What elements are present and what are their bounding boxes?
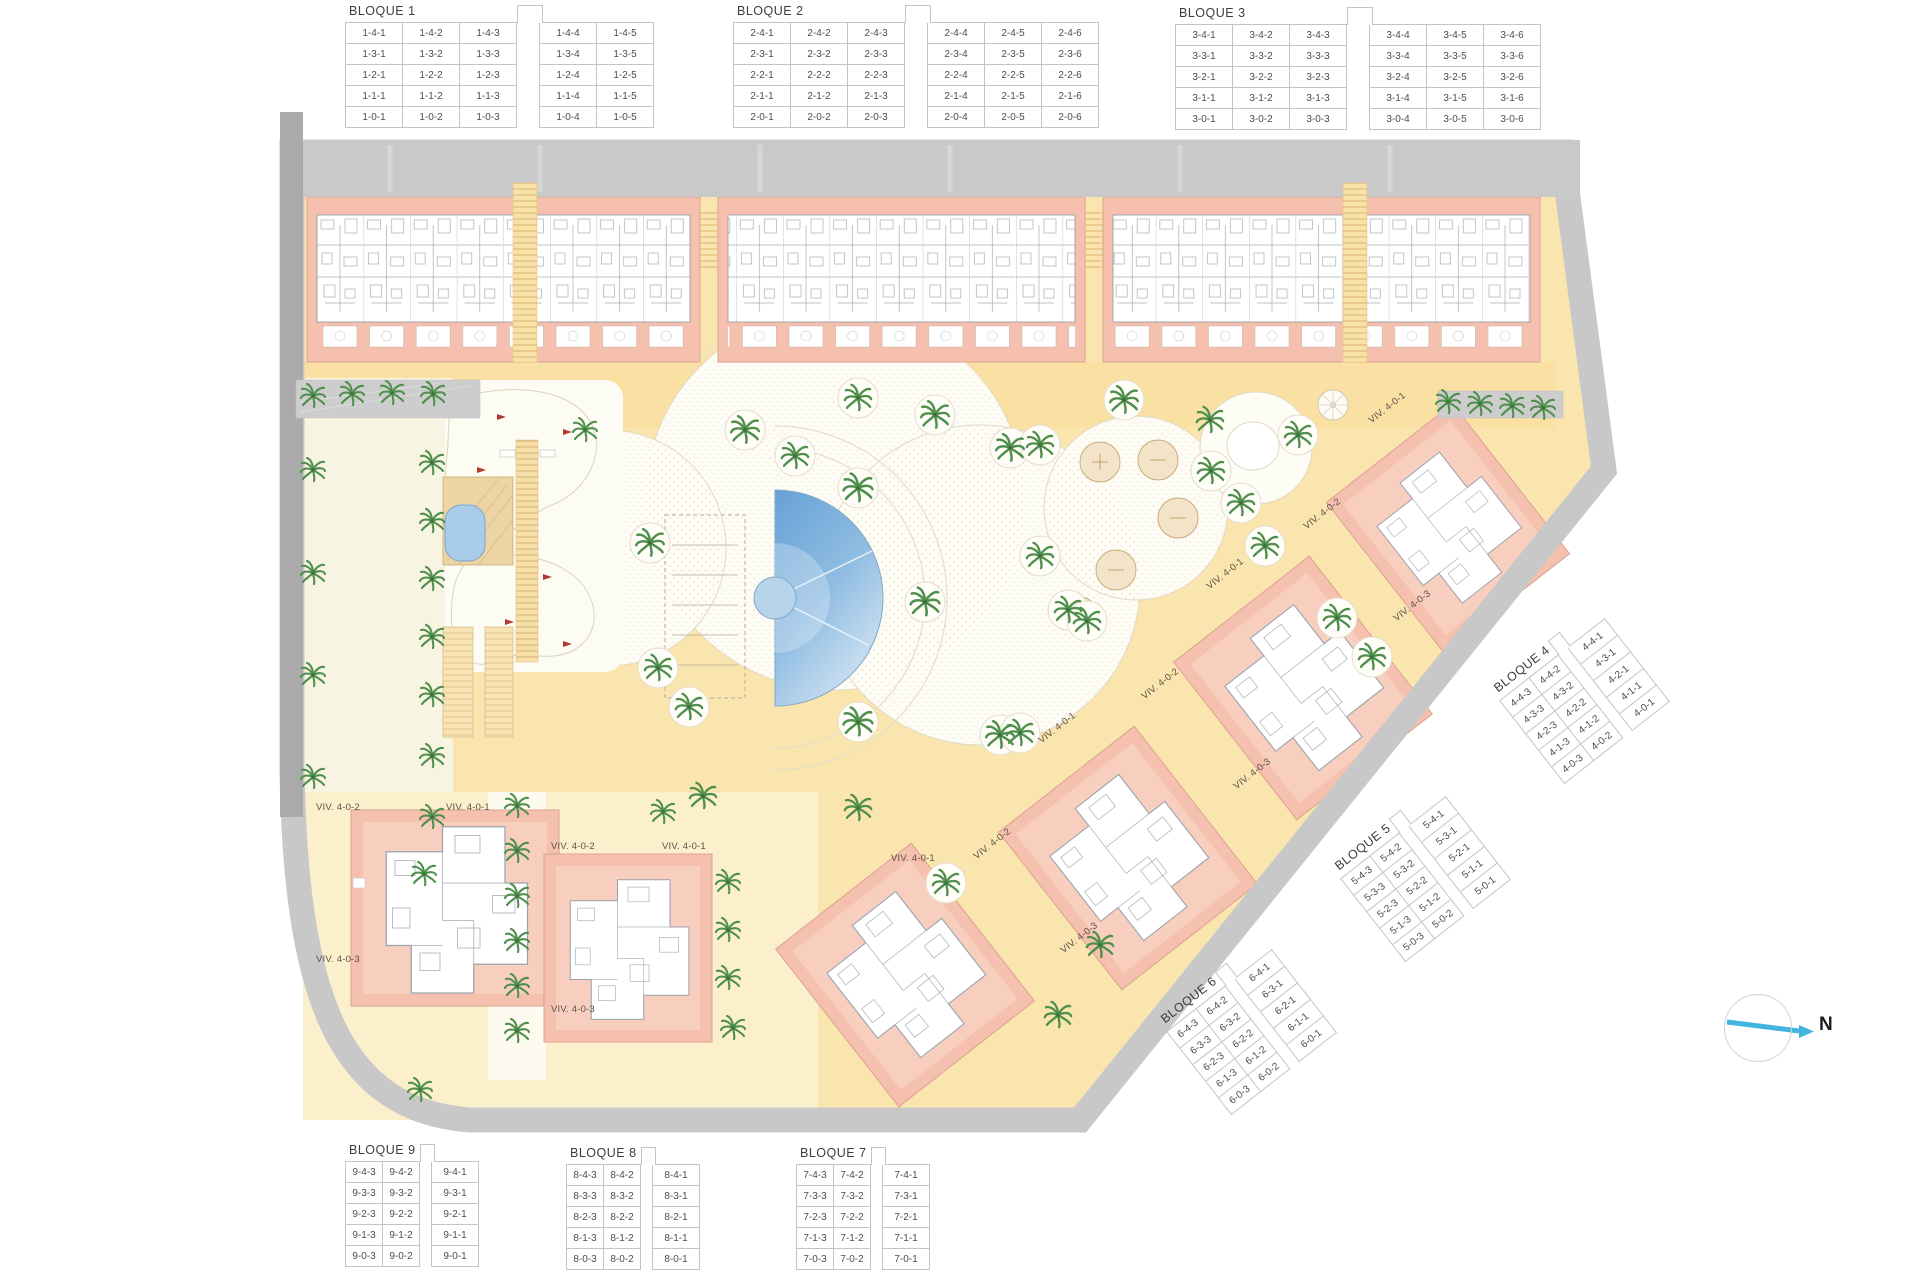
unit-cell: 3-3-1 bbox=[1176, 46, 1233, 67]
unit-cell: 8-3-1 bbox=[653, 1186, 700, 1207]
unit-cell: 2-0-2 bbox=[791, 107, 848, 128]
unit-cell: 8-2-2 bbox=[604, 1207, 641, 1228]
unit-cell: 3-0-2 bbox=[1233, 109, 1290, 130]
table-gap-cell bbox=[420, 1225, 432, 1246]
unit-cell: 8-4-3 bbox=[567, 1165, 604, 1186]
table-gap-cell bbox=[641, 1228, 653, 1249]
unit-cell: 7-1-3 bbox=[797, 1228, 834, 1249]
unit-cell: 2-4-5 bbox=[985, 23, 1042, 44]
bloque-8-title: BLOQUE 8 bbox=[570, 1146, 637, 1160]
bloque-3-table: BLOQUE 3 3-4-13-4-23-4-33-4-43-4-53-4-63… bbox=[1175, 6, 1541, 130]
unit-cell: 1-0-5 bbox=[597, 107, 654, 128]
unit-cell: 3-0-6 bbox=[1484, 109, 1541, 130]
unit-cell: 7-3-2 bbox=[834, 1186, 871, 1207]
table-gap-box bbox=[1347, 7, 1373, 25]
bloque-1-title: BLOQUE 1 bbox=[349, 4, 416, 18]
unit-cell: 7-2-1 bbox=[883, 1207, 930, 1228]
unit-cell: 2-2-5 bbox=[985, 65, 1042, 86]
unit-cell: 9-1-3 bbox=[346, 1225, 383, 1246]
unit-cell: 9-1-2 bbox=[383, 1225, 420, 1246]
unit-cell: 2-0-4 bbox=[928, 107, 985, 128]
unit-cell: 2-0-5 bbox=[985, 107, 1042, 128]
table-gap-cell bbox=[641, 1207, 653, 1228]
unit-cell: 1-2-5 bbox=[597, 65, 654, 86]
viv-unit-label: VIV. 4-0-1 bbox=[446, 802, 490, 813]
viv-unit-label: VIV. 4-0-3 bbox=[1392, 588, 1433, 624]
unit-grid: 1-4-11-4-21-4-31-4-41-4-51-3-11-3-21-3-3… bbox=[345, 22, 654, 128]
unit-cell: 2-0-1 bbox=[734, 107, 791, 128]
table-gap-cell bbox=[1347, 25, 1370, 46]
table-gap-cell bbox=[1347, 88, 1370, 109]
unit-cell: 1-4-2 bbox=[403, 23, 460, 44]
unit-cell: 3-3-5 bbox=[1427, 46, 1484, 67]
table-gap-cell bbox=[1347, 46, 1370, 67]
unit-cell: 1-4-3 bbox=[460, 23, 517, 44]
unit-cell: 3-4-5 bbox=[1427, 25, 1484, 46]
unit-cell: 2-3-2 bbox=[791, 44, 848, 65]
unit-cell: 3-1-3 bbox=[1290, 88, 1347, 109]
unit-cell: 3-4-6 bbox=[1484, 25, 1541, 46]
unit-cell: 2-1-4 bbox=[928, 86, 985, 107]
unit-cell: 1-1-5 bbox=[597, 86, 654, 107]
unit-cell: 9-0-1 bbox=[432, 1246, 479, 1267]
viv-unit-label: VIV. 4-0-2 bbox=[316, 802, 360, 813]
unit-cell: 3-1-2 bbox=[1233, 88, 1290, 109]
unit-cell: 2-0-6 bbox=[1042, 107, 1099, 128]
unit-cell: 1-0-2 bbox=[403, 107, 460, 128]
unit-cell: 8-0-1 bbox=[653, 1249, 700, 1270]
unit-cell: 2-3-4 bbox=[928, 44, 985, 65]
table-gap-cell bbox=[905, 23, 928, 44]
unit-cell: 3-4-2 bbox=[1233, 25, 1290, 46]
unit-cell: 2-2-4 bbox=[928, 65, 985, 86]
table-gap-cell bbox=[641, 1249, 653, 1270]
unit-cell: 3-2-6 bbox=[1484, 67, 1541, 88]
unit-cell: 1-3-3 bbox=[460, 44, 517, 65]
unit-cell: 1-2-1 bbox=[346, 65, 403, 86]
table-gap-cell bbox=[871, 1249, 883, 1270]
unit-cell: 9-3-1 bbox=[432, 1183, 479, 1204]
unit-cell: 1-4-4 bbox=[540, 23, 597, 44]
table-gap-cell bbox=[871, 1207, 883, 1228]
viv-unit-label: VIV. 4-0-1 bbox=[891, 853, 935, 864]
unit-cell: 2-4-4 bbox=[928, 23, 985, 44]
unit-cell: 9-4-2 bbox=[383, 1162, 420, 1183]
unit-cell: 3-4-4 bbox=[1370, 25, 1427, 46]
unit-cell: 1-4-5 bbox=[597, 23, 654, 44]
bloque-8-table: BLOQUE 8 8-4-38-4-28-4-18-3-38-3-28-3-18… bbox=[566, 1146, 700, 1270]
unit-grid: 9-4-39-4-29-4-19-3-39-3-29-3-19-2-39-2-2… bbox=[345, 1161, 479, 1267]
table-gap-cell bbox=[871, 1186, 883, 1207]
unit-cell: 2-2-1 bbox=[734, 65, 791, 86]
unit-cell: 7-2-2 bbox=[834, 1207, 871, 1228]
unit-grid: 3-4-13-4-23-4-33-4-43-4-53-4-63-3-13-3-2… bbox=[1175, 24, 1541, 130]
unit-cell: 7-4-3 bbox=[797, 1165, 834, 1186]
unit-cell: 2-3-5 bbox=[985, 44, 1042, 65]
table-gap-box bbox=[905, 5, 931, 23]
unit-cell: 2-1-5 bbox=[985, 86, 1042, 107]
unit-cell: 3-0-3 bbox=[1290, 109, 1347, 130]
unit-cell: 2-4-2 bbox=[791, 23, 848, 44]
unit-cell: 1-0-1 bbox=[346, 107, 403, 128]
table-gap-cell bbox=[420, 1246, 432, 1267]
unit-cell: 1-2-2 bbox=[403, 65, 460, 86]
unit-cell: 1-1-1 bbox=[346, 86, 403, 107]
unit-cell: 1-3-4 bbox=[540, 44, 597, 65]
unit-cell: 3-2-3 bbox=[1290, 67, 1347, 88]
table-gap-cell bbox=[420, 1162, 432, 1183]
unit-cell: 7-0-2 bbox=[834, 1249, 871, 1270]
unit-cell: 3-2-1 bbox=[1176, 67, 1233, 88]
viv-unit-label: VIV. 4-0-3 bbox=[1232, 756, 1273, 792]
unit-cell: 2-2-2 bbox=[791, 65, 848, 86]
unit-cell: 3-0-1 bbox=[1176, 109, 1233, 130]
unit-cell: 3-0-4 bbox=[1370, 109, 1427, 130]
unit-cell: 1-1-4 bbox=[540, 86, 597, 107]
unit-cell: 1-3-5 bbox=[597, 44, 654, 65]
table-gap-cell bbox=[871, 1165, 883, 1186]
viv-unit-label: VIV. 4-0-3 bbox=[316, 954, 360, 965]
unit-cell: 9-4-3 bbox=[346, 1162, 383, 1183]
unit-grid: 7-4-37-4-27-4-17-3-37-3-27-3-17-2-37-2-2… bbox=[796, 1164, 930, 1270]
compass-circle bbox=[1724, 994, 1792, 1062]
unit-cell: 8-4-1 bbox=[653, 1165, 700, 1186]
unit-cell: 3-1-1 bbox=[1176, 88, 1233, 109]
unit-cell: 7-4-1 bbox=[883, 1165, 930, 1186]
unit-cell: 3-4-1 bbox=[1176, 25, 1233, 46]
unit-cell: 8-0-3 bbox=[567, 1249, 604, 1270]
unit-cell: 2-2-3 bbox=[848, 65, 905, 86]
bloque-2-title: BLOQUE 2 bbox=[737, 4, 804, 18]
unit-cell: 8-2-3 bbox=[567, 1207, 604, 1228]
unit-cell: 8-0-2 bbox=[604, 1249, 641, 1270]
unit-cell: 7-0-3 bbox=[797, 1249, 834, 1270]
table-gap-box bbox=[420, 1144, 435, 1162]
table-gap-cell bbox=[1347, 109, 1370, 130]
north-label: N bbox=[1819, 1014, 1833, 1036]
unit-cell: 1-1-2 bbox=[403, 86, 460, 107]
unit-cell: 9-0-2 bbox=[383, 1246, 420, 1267]
unit-cell: 8-2-1 bbox=[653, 1207, 700, 1228]
unit-cell: 3-0-5 bbox=[1427, 109, 1484, 130]
unit-cell: 7-0-1 bbox=[883, 1249, 930, 1270]
unit-cell: 3-3-2 bbox=[1233, 46, 1290, 67]
unit-cell: 7-3-1 bbox=[883, 1186, 930, 1207]
viv-labels-layer: VIV. 4-0-2VIV. 4-0-1VIV. 4-0-3VIV. 4-0-2… bbox=[0, 0, 1920, 1280]
bloque-9-table: BLOQUE 9 9-4-39-4-29-4-19-3-39-3-29-3-19… bbox=[345, 1143, 479, 1267]
unit-cell: 9-0-3 bbox=[346, 1246, 383, 1267]
bloque-3-title: BLOQUE 3 bbox=[1179, 6, 1246, 20]
unit-cell: 2-1-2 bbox=[791, 86, 848, 107]
unit-cell: 1-2-4 bbox=[540, 65, 597, 86]
bloque-9-title: BLOQUE 9 bbox=[349, 1143, 416, 1157]
table-gap-cell bbox=[905, 65, 928, 86]
table-gap-cell bbox=[905, 107, 928, 128]
unit-cell: 8-3-3 bbox=[567, 1186, 604, 1207]
viv-unit-label: VIV. 4-0-3 bbox=[551, 1004, 595, 1015]
unit-cell: 1-0-3 bbox=[460, 107, 517, 128]
viv-unit-label: VIV. 4-0-1 bbox=[1037, 710, 1078, 746]
unit-cell: 9-2-2 bbox=[383, 1204, 420, 1225]
unit-cell: 2-0-3 bbox=[848, 107, 905, 128]
unit-cell: 2-3-1 bbox=[734, 44, 791, 65]
unit-cell: 2-1-6 bbox=[1042, 86, 1099, 107]
unit-cell: 1-3-1 bbox=[346, 44, 403, 65]
unit-cell: 3-1-5 bbox=[1427, 88, 1484, 109]
viv-unit-label: VIV. 4-0-1 bbox=[662, 841, 706, 852]
unit-cell: 7-1-2 bbox=[834, 1228, 871, 1249]
table-gap-box bbox=[871, 1147, 886, 1165]
unit-cell: 2-1-1 bbox=[734, 86, 791, 107]
viv-unit-label: VIV. 4-0-2 bbox=[1302, 496, 1343, 532]
unit-cell: 3-3-4 bbox=[1370, 46, 1427, 67]
unit-cell: 1-1-3 bbox=[460, 86, 517, 107]
bloque-7-table: BLOQUE 7 7-4-37-4-27-4-17-3-37-3-27-3-17… bbox=[796, 1146, 930, 1270]
unit-cell: 1-0-4 bbox=[540, 107, 597, 128]
unit-cell: 8-1-3 bbox=[567, 1228, 604, 1249]
unit-cell: 2-4-1 bbox=[734, 23, 791, 44]
table-gap-cell bbox=[517, 23, 540, 44]
table-gap-cell bbox=[517, 65, 540, 86]
table-gap-cell bbox=[641, 1186, 653, 1207]
unit-cell: 2-4-6 bbox=[1042, 23, 1099, 44]
unit-cell: 9-3-3 bbox=[346, 1183, 383, 1204]
bloque-7-title: BLOQUE 7 bbox=[800, 1146, 867, 1160]
table-gap-box bbox=[517, 5, 543, 23]
unit-cell: 3-2-2 bbox=[1233, 67, 1290, 88]
unit-cell: 2-4-3 bbox=[848, 23, 905, 44]
table-gap-cell bbox=[871, 1228, 883, 1249]
unit-cell: 8-1-1 bbox=[653, 1228, 700, 1249]
unit-cell: 8-4-2 bbox=[604, 1165, 641, 1186]
unit-cell: 3-2-4 bbox=[1370, 67, 1427, 88]
viv-unit-label: VIV. 4-0-1 bbox=[1367, 390, 1408, 426]
unit-cell: 3-3-3 bbox=[1290, 46, 1347, 67]
table-gap-cell bbox=[420, 1183, 432, 1204]
unit-cell: 8-1-2 bbox=[604, 1228, 641, 1249]
unit-cell: 3-3-6 bbox=[1484, 46, 1541, 67]
unit-cell: 1-4-1 bbox=[346, 23, 403, 44]
table-gap-cell bbox=[641, 1165, 653, 1186]
table-gap-cell bbox=[420, 1204, 432, 1225]
unit-cell: 2-3-6 bbox=[1042, 44, 1099, 65]
table-gap-cell bbox=[517, 44, 540, 65]
table-gap-cell bbox=[1347, 67, 1370, 88]
unit-cell: 9-3-2 bbox=[383, 1183, 420, 1204]
unit-cell: 7-2-3 bbox=[797, 1207, 834, 1228]
unit-cell: 3-2-5 bbox=[1427, 67, 1484, 88]
unit-cell: 3-1-6 bbox=[1484, 88, 1541, 109]
bloque-2-table: BLOQUE 2 2-4-12-4-22-4-32-4-42-4-52-4-62… bbox=[733, 4, 1099, 128]
unit-cell: 3-4-3 bbox=[1290, 25, 1347, 46]
unit-cell: 2-3-3 bbox=[848, 44, 905, 65]
viv-unit-label: VIV. 4-0-3 bbox=[1059, 920, 1100, 956]
viv-unit-label: VIV. 4-0-2 bbox=[551, 841, 595, 852]
unit-cell: 8-3-2 bbox=[604, 1186, 641, 1207]
unit-cell: 9-2-1 bbox=[432, 1204, 479, 1225]
table-gap-cell bbox=[517, 107, 540, 128]
bloque-1-table: BLOQUE 1 1-4-11-4-21-4-31-4-41-4-51-3-11… bbox=[345, 4, 654, 128]
unit-cell: 7-4-2 bbox=[834, 1165, 871, 1186]
unit-cell: 7-3-3 bbox=[797, 1186, 834, 1207]
unit-cell: 3-1-4 bbox=[1370, 88, 1427, 109]
table-gap-cell bbox=[905, 44, 928, 65]
unit-cell: 1-3-2 bbox=[403, 44, 460, 65]
unit-cell: 1-2-3 bbox=[460, 65, 517, 86]
table-gap-box bbox=[641, 1147, 656, 1165]
unit-cell: 2-1-3 bbox=[848, 86, 905, 107]
unit-cell: 9-4-1 bbox=[432, 1162, 479, 1183]
unit-cell: 2-2-6 bbox=[1042, 65, 1099, 86]
site-plan: BLOQUE 1 1-4-11-4-21-4-31-4-41-4-51-3-11… bbox=[0, 0, 1920, 1280]
table-gap-cell bbox=[905, 86, 928, 107]
unit-grid: 2-4-12-4-22-4-32-4-42-4-52-4-62-3-12-3-2… bbox=[733, 22, 1099, 128]
viv-unit-label: VIV. 4-0-2 bbox=[1140, 666, 1181, 702]
viv-unit-label: VIV. 4-0-1 bbox=[1205, 556, 1246, 592]
unit-cell: 7-1-1 bbox=[883, 1228, 930, 1249]
viv-unit-label: VIV. 4-0-2 bbox=[972, 826, 1013, 862]
table-gap-cell bbox=[517, 86, 540, 107]
unit-cell: 9-1-1 bbox=[432, 1225, 479, 1246]
unit-grid: 8-4-38-4-28-4-18-3-38-3-28-3-18-2-38-2-2… bbox=[566, 1164, 700, 1270]
unit-cell: 9-2-3 bbox=[346, 1204, 383, 1225]
